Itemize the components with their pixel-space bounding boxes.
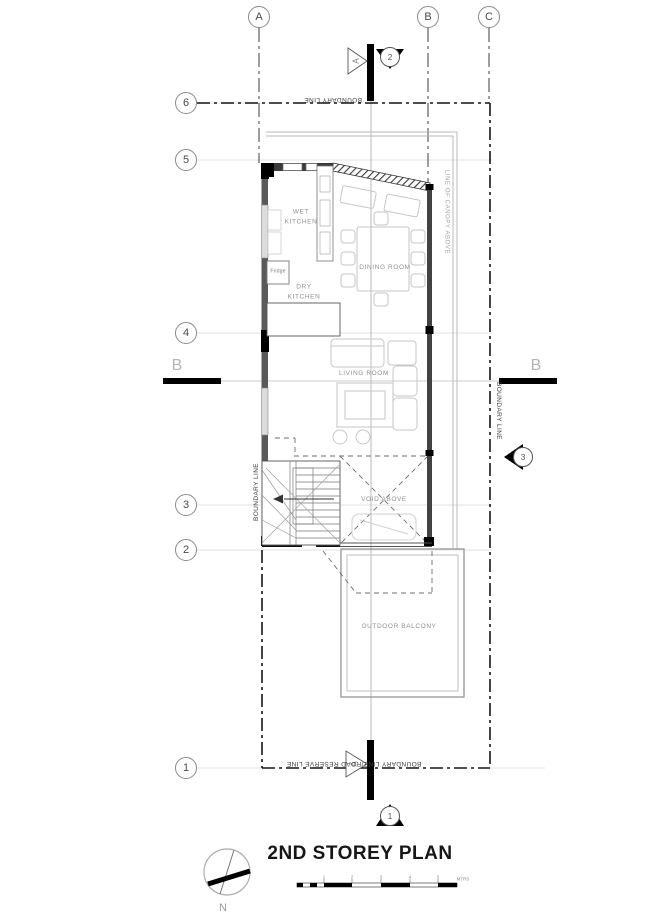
scale-tick-1: 1: [323, 875, 326, 880]
kitchen-fixtures: [267, 166, 340, 336]
grid-bubble-row-4: 4: [175, 322, 197, 344]
staircase: [262, 461, 340, 545]
north-arrow-icon: [204, 849, 250, 895]
room-label-fridge: Fridge: [270, 268, 285, 276]
room-label-dry-kitchen: DRY KITCHEN: [288, 282, 321, 302]
grid-bubble-col-c: C: [478, 6, 500, 28]
boundary-label-left: BOUNDARY LINE: [252, 463, 262, 521]
canopy-label: LINE OF CANOPY ABOVE: [442, 170, 451, 254]
section-letter-b-left: B: [172, 357, 183, 375]
north-label: N: [219, 902, 227, 914]
grid-bubble-row-5: 5: [175, 149, 197, 171]
section-letter-b-right: B: [531, 357, 542, 375]
section-bubble-3: 3: [513, 447, 533, 467]
dining-furniture: [340, 186, 425, 306]
boundary-label-top: BOUNDARY LINE: [304, 94, 362, 104]
scale-tick-3: 3: [380, 875, 383, 880]
room-label-wet-kitchen: WET KITCHEN: [285, 207, 318, 227]
scale-tick-4: 4: [409, 875, 412, 880]
room-label-balcony: OUTDOOR BALCONY: [361, 622, 436, 632]
sheet-title: 2ND STOREY PLAN: [267, 843, 452, 865]
floor-plan-sheet: A B C 6 5 4 3 2 1 2 1 3 A A B B BOUNDARY…: [0, 0, 649, 918]
scale-unit: MTRS: [457, 877, 470, 882]
living-furniture: [331, 339, 417, 444]
section-bubble-2: 2: [380, 47, 400, 67]
grid-bubble-col-a: A: [248, 6, 270, 28]
scale-tick-5: 5: [437, 875, 440, 880]
plan-linework: [0, 0, 649, 918]
grid-bubble-col-b: B: [417, 6, 439, 28]
section-flag-a-top: A: [352, 58, 361, 63]
canopy-dashed-in-balcony: [323, 551, 432, 593]
room-label-void: VOID ABOVE: [361, 495, 407, 505]
grid-bubble-row-3: 3: [175, 494, 197, 516]
room-label-living: LIVING ROOM: [339, 369, 389, 379]
grid-bubble-row-6: 6: [175, 92, 197, 114]
scale-bar: [297, 879, 457, 887]
room-label-dining: DINING ROOM: [359, 263, 410, 273]
section-bubble-1: 1: [380, 806, 400, 826]
boundary-label-right: BOUNDARY LINE: [493, 382, 503, 440]
grid-bubble-row-1: 1: [175, 757, 197, 779]
scale-tick-2: 2: [351, 875, 354, 880]
furniture-seen-through-void: [352, 514, 416, 540]
grid-bubble-row-2: 2: [175, 539, 197, 561]
boundary-label-bottom: BOUNDARY LINE/ROAD RESERVE LINE: [287, 758, 422, 768]
